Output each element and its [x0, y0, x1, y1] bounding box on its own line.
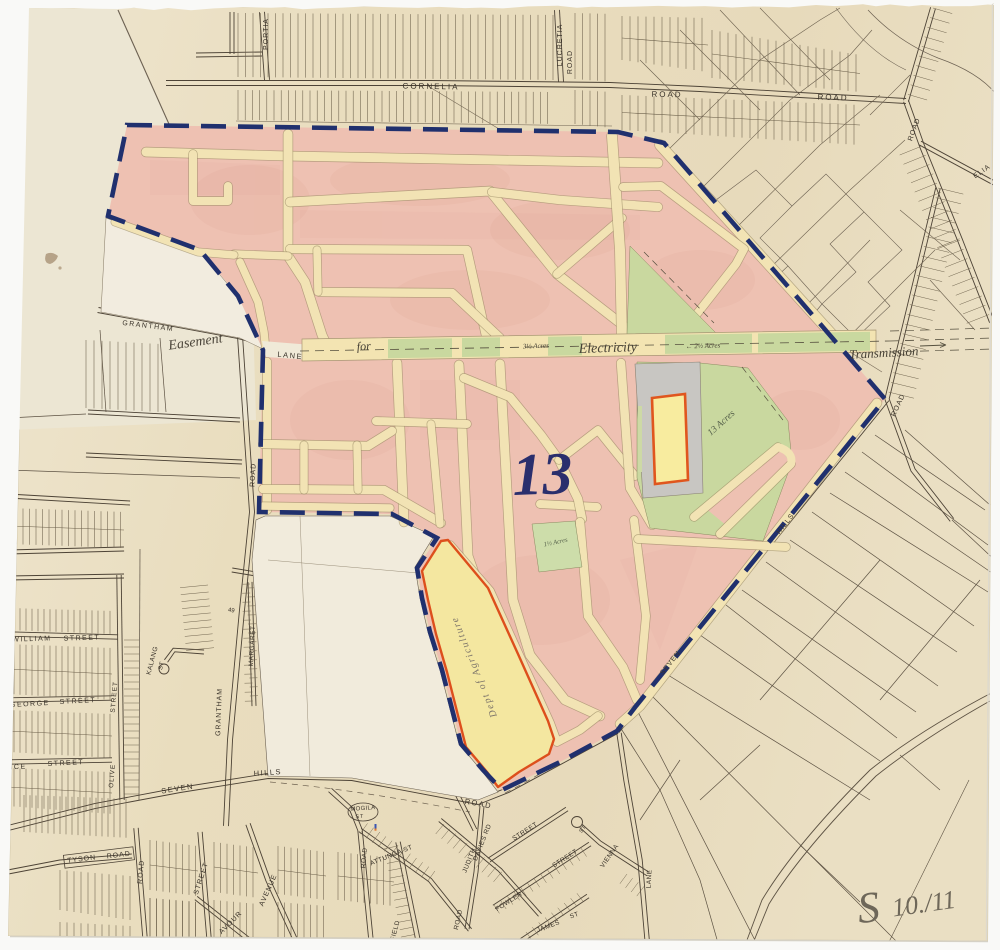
svg-text:CORNELIA: CORNELIA — [403, 82, 460, 92]
svg-text:LUCRETIA: LUCRETIA — [557, 24, 564, 67]
svg-text:ROAD: ROAD — [249, 463, 257, 488]
svg-text:ROAD: ROAD — [567, 50, 574, 74]
svg-text:Electricity: Electricity — [577, 340, 638, 357]
svg-text:13: 13 — [511, 440, 573, 508]
svg-text:STREET: STREET — [64, 634, 101, 642]
svg-text:ROAD: ROAD — [817, 92, 848, 102]
svg-text:WILLIAM: WILLIAM — [12, 635, 52, 643]
svg-text:ROAD: ROAD — [651, 90, 682, 100]
svg-text:for: for — [356, 339, 371, 354]
svg-text:← 2½ Acres: ← 2½ Acres — [685, 341, 720, 350]
svg-text:LANE: LANE — [646, 869, 654, 888]
svg-text:PORTIA: PORTIA — [263, 18, 270, 50]
svg-text:ST: ST — [355, 814, 364, 821]
svg-text:3½ Acres: 3½ Acres — [522, 342, 550, 351]
